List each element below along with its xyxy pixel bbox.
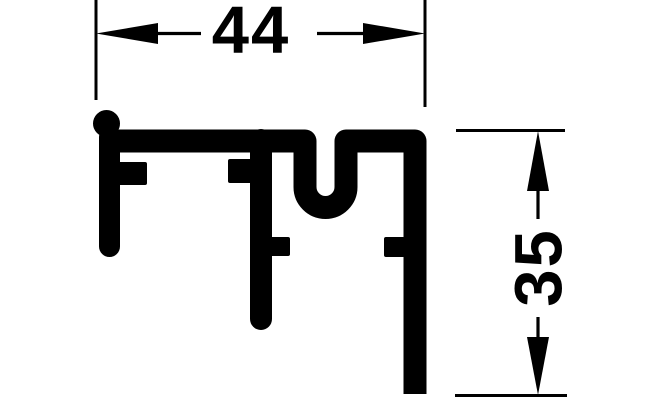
profile-cross-section bbox=[93, 110, 415, 394]
profile-drawing-svg: 44 35 bbox=[0, 0, 659, 400]
height-dimension: 35 bbox=[455, 131, 577, 396]
profile-tab-right-wall bbox=[384, 237, 405, 257]
profile-left-clip-head bbox=[93, 110, 120, 137]
arrow-up-icon bbox=[527, 131, 549, 191]
arrow-down-icon bbox=[527, 337, 549, 395]
height-dimension-label: 35 bbox=[502, 228, 577, 307]
profile-tab-middle-wall-right bbox=[270, 237, 290, 256]
profile-tab-middle-wall-left bbox=[228, 159, 254, 183]
arrow-left-icon bbox=[96, 23, 158, 44]
profile-tab-left-stem bbox=[116, 162, 147, 185]
arrow-right-icon bbox=[363, 23, 425, 44]
technical-drawing-canvas: 44 35 bbox=[0, 0, 659, 400]
width-dimension: 44 bbox=[96, 0, 425, 107]
width-dimension-label: 44 bbox=[212, 0, 291, 68]
